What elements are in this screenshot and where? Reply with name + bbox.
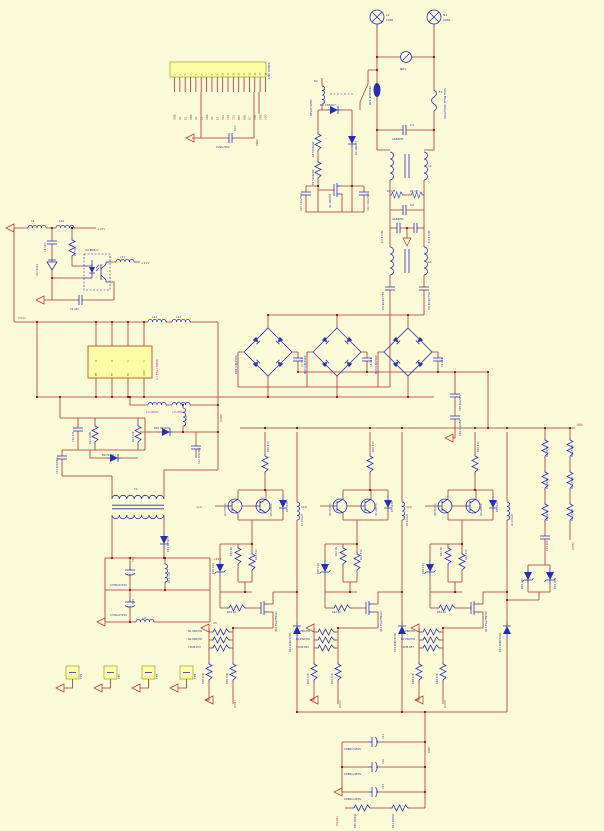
wire-layer (14, 27, 575, 808)
schematic-label: Q8 C8050 (433, 503, 437, 516)
junction-dots (37, 57, 570, 792)
ground-symbol (132, 684, 140, 692)
schematic-label: Q9 A8550 (479, 503, 483, 516)
ground-symbol (56, 684, 64, 692)
schematic-label: (G3) (406, 505, 412, 509)
schematic-label: 0V (213, 621, 218, 625)
schematic-label: Y1K/B R37 (188, 645, 201, 649)
neon-lamp[interactable] (401, 52, 412, 63)
schematic-label: R59 47K (435, 673, 439, 684)
schematic-label: R17 510K (570, 509, 574, 521)
schematic-label: U3 TL431 (35, 264, 39, 276)
ground-symbol (36, 296, 44, 304)
ground-symbol (403, 238, 411, 246)
schematic-label: R38 47K (201, 673, 205, 684)
schematic-label: VIN (577, 423, 583, 427)
schematic-label: (CS3) (443, 700, 447, 708)
testpoint-wire (140, 679, 149, 688)
flyback-transformer[interactable] (112, 492, 164, 522)
schematic-label: C5 104/275V (381, 292, 385, 310)
resistor[interactable] (135, 424, 141, 444)
schematic-label: (VAUX) (335, 816, 339, 826)
testpoint-label: TP3 (155, 674, 159, 680)
schematic-label: F1 (439, 90, 443, 94)
schematic-label: N1-P80/3W (401, 629, 415, 633)
capacitor[interactable] (229, 133, 232, 143)
schematic-label: R33 510 (254, 549, 258, 560)
schematic-label: C680u/450V (344, 772, 361, 776)
gate-drive-channel-2[interactable] (306, 432, 406, 712)
schematic-label: +24V (213, 557, 222, 561)
schematic-label: C21 (381, 734, 385, 739)
schematic-label: C3 472M (380, 230, 384, 243)
schematic-label: L14 BEAD (146, 410, 158, 414)
schematic-label: +12V (141, 261, 150, 265)
schematic-label: CN1 CON18 (267, 62, 271, 79)
ground-symbol (97, 618, 105, 626)
x-capacitor[interactable] (403, 125, 406, 135)
schematic-label: R2 1M (410, 189, 418, 193)
schematic-sheet: C22u/50VC17VDDL1CON1N1CON1NE1RV1 10D561K… (0, 0, 604, 831)
schematic-label: R32 1K (229, 547, 233, 556)
schematic-label: R48 47K (306, 673, 310, 684)
ic-pin-name: GND (143, 370, 146, 376)
bridge-rectifier[interactable] (244, 328, 292, 376)
schematic-label: L15 BEAD (172, 410, 184, 414)
capacitor[interactable] (450, 416, 460, 419)
schematic-label: L12 (152, 315, 157, 319)
ic-pin-name: D (95, 360, 98, 362)
schematic-label: R1 1M (387, 189, 395, 193)
relay-mosfet[interactable] (334, 183, 342, 197)
relay-coil[interactable] (322, 86, 325, 104)
schematic-label: C680u/450V (344, 797, 361, 801)
connector-pin-name: G3 (210, 116, 214, 120)
schematic-label: U2 PC817 (85, 248, 99, 252)
schematic-label: R5 510K/2W (311, 141, 315, 157)
schematic-label: C15 C10u/50V (299, 193, 303, 211)
schematic-label: Q11 FGA25N120 (379, 611, 383, 632)
schematic-label: T1 (133, 487, 138, 491)
schematic-label: L3 (428, 260, 432, 264)
schematic-label: N1-P80/3W (188, 629, 202, 633)
schematic-label: R40 510 (371, 441, 375, 452)
schematic-label: R42 1K (334, 547, 338, 556)
ic-pin-name: FB (111, 373, 114, 376)
testpoint-wire (64, 679, 73, 688)
schematic-label: R16 510K (570, 477, 574, 489)
schematic-label: R39 47K (225, 673, 229, 684)
connector-pin-name: FAN (242, 115, 246, 120)
schematic-label: L10 (59, 219, 64, 223)
schematic-label: DZ6 12V (421, 563, 425, 574)
schematic-label: C9 471 (440, 358, 444, 367)
schematic-label: R3 510K (545, 446, 549, 457)
schematic-label: K1 (314, 79, 318, 83)
schematic-label: R53 510 (464, 549, 468, 560)
common-mode-choke[interactable] (390, 247, 428, 275)
ground-symbol (6, 224, 14, 232)
schematic-label: L4 100uH (300, 514, 304, 526)
schematic-label: C8 471 (369, 358, 373, 367)
inductor[interactable] (28, 225, 46, 228)
capacitor[interactable] (385, 287, 395, 290)
schematic-label: L16 (184, 415, 188, 420)
schematic-label: A682PM (392, 137, 404, 141)
label-layer: C22u/50VC17VDDL1CON1N1CON1NE1RV1 10D561K… (18, 13, 583, 828)
y-capacitor[interactable] (397, 223, 400, 233)
testpoint-tp3[interactable]: TP3 (132, 666, 159, 692)
schematic-label: N2-P80/3W (188, 637, 202, 641)
schematic-label: Q7 A8550 (374, 503, 378, 516)
schematic-label: Q12 FGA25N120 (484, 611, 488, 632)
connector-pin-name: GND (189, 114, 193, 120)
schematic-label: N2-P80/3W (296, 637, 310, 641)
schematic-label: C19 102/2KV (458, 419, 462, 436)
schematic-label: R58 47K (411, 673, 415, 684)
schematic-label: Q10 FGA25N120 (274, 611, 278, 632)
schematic-label: A682PM (392, 217, 404, 221)
connector-pin-name: CS2 (226, 115, 230, 120)
schematic-label: R54 10 (437, 610, 446, 614)
schematic-label: NE1 (400, 67, 406, 71)
schematic-label: +15V (97, 227, 106, 231)
schematic-label: BR3 GBJ2510 (374, 355, 378, 374)
schematic-label: C2 (410, 203, 414, 207)
wire-snubber (60, 397, 218, 492)
schematic-label: VDD (255, 139, 259, 146)
schematic-label: (CS1) (233, 700, 237, 708)
schematic-label: R7 510K (545, 510, 549, 521)
schematic-label: D5 4148 (390, 501, 394, 512)
schematic-label: (G2) (301, 505, 307, 509)
schematic-label: D10 SR5100 (154, 426, 170, 430)
ground-symbol (445, 434, 453, 442)
schematic-label: R12 100K (88, 432, 92, 444)
connector-pin-name: GND (173, 114, 177, 120)
schematic-label: D6 4148 (495, 501, 499, 512)
connector-pin-name: E2 (199, 116, 203, 120)
resistor[interactable] (352, 805, 372, 811)
connector-pin-name: CS3 (232, 115, 236, 120)
schematic-label: R66 1K/2W (353, 814, 357, 828)
schematic-label: DZ2 30V (553, 578, 557, 589)
schematic-label: L11 (120, 255, 125, 259)
schematic-label: (VDD) (219, 414, 223, 422)
ground-symbol (170, 684, 178, 692)
schematic-label: C1 (410, 123, 414, 127)
schematic-label: C17 (233, 125, 237, 131)
schematic-label: C680u/450V (344, 747, 361, 751)
schematic-label: BR1 GBJ2510 (234, 355, 238, 374)
connector-pin-name: VFB (253, 115, 257, 120)
schematic-label: C13 (131, 557, 135, 562)
wire-bulk-caps (297, 712, 507, 808)
connector-pin-name: GND (205, 114, 209, 120)
capacitor[interactable] (540, 536, 550, 539)
resistor[interactable] (390, 805, 410, 811)
resistor[interactable] (315, 160, 321, 180)
schematic-label: R30 510 (266, 441, 270, 452)
schematic-label: DZ5 12V (316, 563, 320, 574)
schematic-label: R44 10 (332, 610, 341, 614)
testpoint-tp1[interactable]: TP1 (56, 666, 83, 692)
schematic-label: R13 47K (131, 431, 135, 442)
schematic-label: (VFB) (571, 542, 575, 550)
schematic-label: C31 104 (545, 540, 549, 551)
schematic-label: R43 510 (359, 549, 363, 560)
connector-pin-name: CS1 (221, 115, 225, 120)
capacitor[interactable] (419, 287, 429, 290)
x-capacitor[interactable] (403, 205, 406, 215)
schematic-label: N2-P80/3W (401, 637, 415, 641)
bulk-capacitor[interactable] (368, 737, 379, 747)
inductor[interactable] (116, 259, 134, 262)
schematic-label: R49 47K (330, 673, 334, 684)
schematic-label: C23 (381, 784, 385, 789)
ground-symbol (94, 684, 102, 692)
schematic-label: R67 1K/2W (391, 814, 395, 828)
schematic-label: L5 100uH (405, 514, 409, 526)
schematic-label: CON1 (443, 18, 451, 22)
schematic-label: C11 222/2KV (55, 457, 59, 474)
bulk-capacitor[interactable] (368, 762, 379, 772)
schematic-label: L2 (428, 164, 432, 168)
schematic-label: D12 RHRP3060 (288, 632, 292, 652)
schematic-label: GND (427, 747, 431, 753)
schematic-label: D1 1N4007 (320, 103, 336, 107)
ground-symbol (334, 788, 342, 796)
schematic-label: C12 222/1KV (197, 447, 201, 464)
schematic-label: C330uF/25V (110, 583, 127, 587)
schematic-label: C18 102/2KV (458, 394, 462, 411)
schematic-label: Q6 C8050 (328, 503, 332, 516)
optocoupler[interactable] (84, 254, 110, 290)
schematic-label: R15 510K (570, 445, 574, 457)
schematic-label: L17 (142, 616, 147, 620)
testpoint-wire (178, 679, 187, 688)
schematic-label: N1 (443, 13, 447, 17)
schematic-label: Q4 C8050 (223, 503, 227, 516)
schematic-label: R52 1K (439, 547, 443, 556)
resistor[interactable] (92, 424, 98, 444)
wire-connector-area (192, 92, 259, 138)
ic-pin-name: EN (127, 372, 130, 376)
schematic-label: C9 222 (70, 307, 79, 311)
capacitor[interactable] (47, 241, 57, 244)
schematic-label: R6 510K/2W (311, 169, 315, 185)
connector-pin-name: SC (248, 116, 252, 120)
schematic-label: L1 (386, 13, 390, 17)
schematic-label: D11 SB5100 (166, 536, 170, 552)
connector-pin-name: GND (258, 114, 262, 120)
schematic-label: C4 472M (427, 230, 431, 243)
schematic-label: L13 (176, 315, 181, 319)
connector-pin-name: G1 (178, 116, 182, 120)
gate-drive-channel-3[interactable] (411, 432, 511, 712)
schematic-label: R9 51K (73, 247, 77, 256)
schematic-label: D4 4148 (285, 501, 289, 512)
schematic-label: C7 471 (300, 358, 304, 367)
bulk-capacitor[interactable] (368, 787, 379, 797)
schematic-label: D14 RHRP3060 (498, 632, 502, 652)
schematic-label: D2 1N4007 (354, 140, 358, 155)
schematic-label: C14 (131, 599, 135, 604)
schematic-label: (VCC) (18, 316, 26, 320)
schematic-label: N1-P80/3W (296, 629, 310, 633)
schematic-label: C8 104 (43, 243, 47, 252)
bridge-rectifier[interactable] (313, 328, 361, 376)
testpoint-tp2[interactable]: TP2 (94, 666, 121, 692)
schematic-label: (G1) (196, 505, 202, 509)
schematic-label: C16 C10u/50V (366, 193, 370, 211)
connector-pin-layer: 1GND2G13E14GND5G26E27GND8G39E310CS111CS2… (173, 72, 268, 120)
inductor[interactable] (148, 319, 166, 322)
schematic-label: Slow Blow 40A/250V (443, 88, 447, 120)
schematic-label: U1 FSL136MR (155, 359, 159, 380)
schematic-label: R4 510K (545, 478, 549, 489)
y-capacitor[interactable] (414, 223, 417, 233)
schematic-label: C22 (381, 759, 385, 764)
wire-ac-input-filter (368, 27, 434, 387)
schematic-label: C330uF/25V (110, 613, 127, 617)
connector-pin-name: G2 (194, 116, 198, 120)
ac-line-connector[interactable] (370, 10, 384, 27)
inductor[interactable] (172, 319, 190, 322)
diode[interactable] (326, 106, 342, 114)
schematic-label: RV1 10D561K (368, 86, 372, 105)
connector-pin-name: E3 (216, 116, 220, 120)
gate-drive-channel-1[interactable] (201, 432, 301, 712)
schematic-label: C10 471 (71, 431, 75, 442)
ic-pin-name: D (111, 360, 114, 362)
schematic-label: Q5 A8550 (269, 503, 273, 516)
schematic-label: L8 4.7uH (167, 572, 171, 583)
fuse[interactable] (432, 90, 437, 111)
schematic-label: L6 100uH (510, 514, 514, 526)
electrolytic-capacitor[interactable] (125, 566, 135, 577)
ac-neutral-connector[interactable] (427, 10, 441, 27)
testpoint-label: TP1 (79, 674, 83, 680)
schematic-label: R34 10 (227, 610, 236, 614)
capacitor[interactable] (79, 295, 82, 305)
schematic-label: Q1 2N7002 (328, 193, 332, 208)
testpoint-tp4[interactable]: TP4 (170, 666, 197, 692)
schematic-label: Y1K/B R57 (401, 645, 414, 649)
schematic-label: C22u/50V (216, 145, 230, 149)
schematic-label: L9 (31, 219, 35, 223)
schematic-label: D9 FR107 (102, 453, 115, 457)
resistor[interactable] (315, 132, 321, 152)
varistor[interactable] (374, 83, 381, 97)
schematic-label: C6 104/275V (427, 292, 431, 310)
common-mode-choke[interactable] (390, 152, 428, 180)
connector-pin-name: E1 (183, 116, 187, 120)
wire-pwm-ic (14, 322, 218, 470)
schematic-label: DZ1 30V (520, 578, 524, 589)
ferrite-bead[interactable] (148, 402, 166, 405)
ferrite-bead[interactable] (172, 402, 190, 405)
testpoint-label: TP2 (117, 674, 121, 680)
schematic-label: D13 RHRP3060 (393, 632, 397, 652)
schematic-label: RELAY-SPDT (309, 99, 313, 116)
schematic-label: DZ4 12V (211, 563, 215, 574)
schematic-label: Y1K/B R47 (296, 645, 309, 649)
zener-diode[interactable] (523, 568, 534, 584)
capacitor[interactable] (73, 428, 83, 431)
wire-secondary-output (105, 522, 210, 622)
schematic-label: (CS2) (338, 700, 342, 708)
connector-pin-name: VDD (264, 114, 268, 120)
schematic-label: CON1 (386, 18, 394, 22)
schematic-label: R50 510 (476, 441, 480, 452)
testpoint-label: TP4 (193, 674, 197, 680)
connector-pin-name: NTC (237, 115, 241, 120)
testpoint-layer: TP1TP2TP3TP4 (56, 666, 197, 692)
testpoint-wire (102, 679, 111, 688)
bridge-rectifier[interactable] (384, 328, 432, 376)
